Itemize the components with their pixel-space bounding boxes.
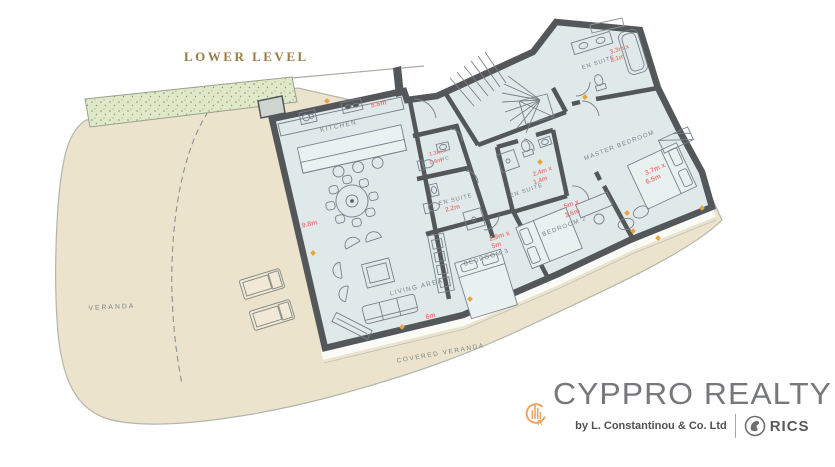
agency-name: CYPPRO REALTY: [553, 377, 832, 411]
page-title: LOWER LEVEL: [184, 49, 309, 65]
monogram-letter: R: [537, 418, 543, 427]
agency-logo: R CYPPRO REALTY by L. Constantinou & Co.…: [524, 377, 824, 455]
rics-lion-icon: [744, 415, 766, 437]
agency-byline: by L. Constantinou & Co. Ltd: [575, 420, 727, 432]
logo-divider: [735, 414, 736, 438]
rics-wordmark: RICS: [770, 418, 810, 435]
rics-badge: RICS: [744, 415, 810, 437]
floor-plan-page: KITCHEN LIVING AREA WC EN SUITE BEDROOM …: [0, 0, 835, 467]
railing-line: [292, 66, 424, 78]
cyppro-logo-mark-icon: R: [524, 377, 547, 455]
